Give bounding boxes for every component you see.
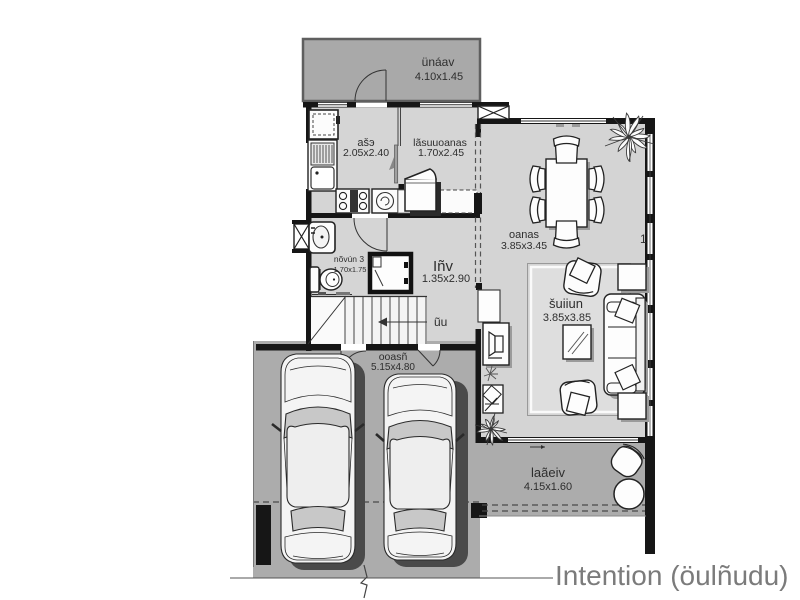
svg-text:laãeiv: laãeiv bbox=[531, 465, 565, 480]
svg-text:1: 1 bbox=[640, 232, 647, 246]
svg-text:1.70x1.75: 1.70x1.75 bbox=[334, 265, 367, 274]
svg-text:2.05x2.40: 2.05x2.40 bbox=[343, 147, 389, 159]
svg-text:1.70x2.45: 1.70x2.45 bbox=[418, 147, 464, 159]
svg-text:nõvún 3: nõvún 3 bbox=[334, 254, 365, 264]
svg-text:šuiiun: šuiiun bbox=[549, 296, 583, 311]
svg-text:5.15x4.80: 5.15x4.80 bbox=[371, 362, 415, 373]
svg-text:ünáav: ünáav bbox=[422, 55, 455, 69]
svg-text:4.15x1.60: 4.15x1.60 bbox=[524, 481, 572, 493]
svg-text:Intention (öulñudu): Intention (öulñudu) bbox=[555, 560, 789, 591]
svg-text:3.85x3.45: 3.85x3.45 bbox=[501, 240, 547, 252]
svg-text:4.10x1.45: 4.10x1.45 bbox=[415, 71, 463, 83]
svg-text:ũu: ũu bbox=[434, 315, 447, 329]
svg-text:1.35x2.90: 1.35x2.90 bbox=[422, 273, 470, 285]
svg-text:3.85x3.85: 3.85x3.85 bbox=[543, 312, 591, 324]
